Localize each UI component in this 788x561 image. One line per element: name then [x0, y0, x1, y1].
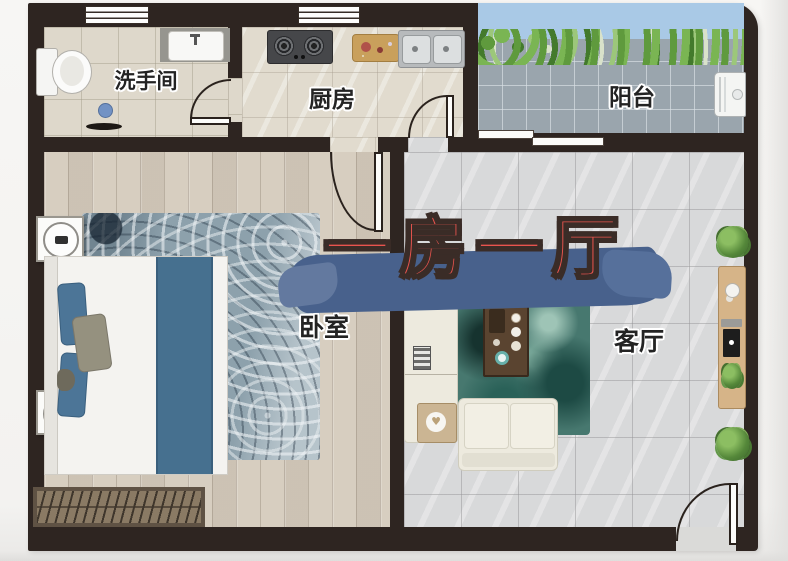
heart-icon: ♥ — [426, 412, 446, 432]
kitchen-label: 厨房 — [282, 80, 382, 114]
potted-plant-icon — [717, 226, 749, 258]
living-room-label: 客厅 — [579, 322, 699, 358]
gas-stove-icon — [267, 30, 333, 64]
floor-plan-image: ♥ 洗手间 厨房 阳台 卧室 客厅 一房一厅 — [0, 0, 788, 561]
magazine-icon — [413, 346, 431, 370]
tv-console-icon — [718, 266, 746, 409]
kitchen-doorway-patch — [408, 137, 448, 152]
photo-edge — [0, 551, 788, 561]
apartment-floor-plan: ♥ 洗手间 厨房 阳台 卧室 客厅 一房一厅 — [28, 3, 758, 551]
double-sink-icon — [398, 30, 465, 68]
title-banner: 一房一厅 — [290, 203, 662, 299]
balcony-sliding-door-panel — [478, 130, 534, 139]
entrance-door-leaf — [729, 483, 738, 545]
console-plant-icon — [722, 363, 742, 389]
kitchen-window-icon — [298, 6, 360, 24]
bathroom-label: 洗手间 — [86, 65, 206, 95]
balcony-sliding-door-panel — [532, 137, 604, 146]
coffee-table-icon — [483, 303, 529, 377]
accent-pillow-icon — [71, 313, 112, 373]
bedroom-doorway-patch — [330, 137, 378, 152]
washbasin-icon — [160, 28, 230, 62]
photo-edge — [760, 0, 788, 561]
kitchen-door-leaf — [446, 95, 454, 138]
plant-hedge-icon — [478, 29, 744, 65]
doormat-icon — [33, 487, 205, 527]
balcony-label: 阳台 — [572, 78, 692, 112]
bathroom-window-icon — [85, 6, 149, 24]
cutting-board-icon — [352, 34, 400, 62]
washing-machine-icon — [714, 72, 746, 117]
page-title: 一房一厅 — [290, 203, 662, 295]
bed-runner — [156, 257, 213, 474]
toilet-icon — [36, 47, 92, 95]
bedroom-label: 卧室 — [264, 308, 384, 344]
side-table-icon: ♥ — [417, 403, 457, 443]
double-bed-icon — [44, 256, 228, 475]
floor-drain-icon — [98, 103, 113, 118]
drain-base — [86, 123, 122, 130]
potted-plant-icon — [716, 427, 750, 461]
sofa-loveseat — [458, 398, 558, 471]
balcony-area — [478, 3, 744, 133]
bed-ribbon — [57, 369, 75, 391]
lamp-icon — [43, 222, 79, 258]
